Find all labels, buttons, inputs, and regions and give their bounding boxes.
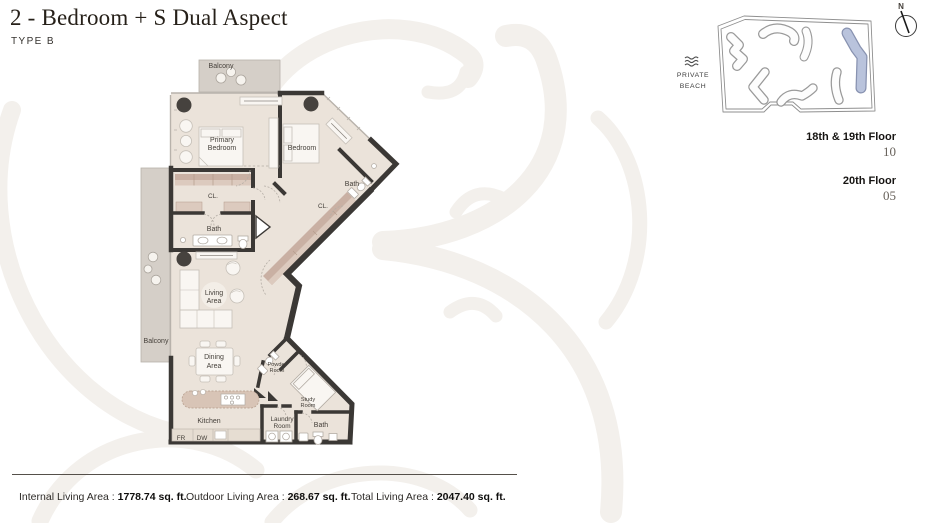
primary-bedroom-label-2: Bedroom — [208, 145, 237, 152]
bedroom-label: Bedroom — [288, 145, 317, 152]
floor-plan: Balcony Primary Bedroom Bedroom CL. Bath… — [141, 60, 396, 444]
stat-value: 2047.40 sq. ft. — [437, 491, 506, 503]
compass: N — [896, 2, 917, 37]
floorplan-page: Balcony Primary Bedroom Bedroom CL. Bath… — [0, 0, 926, 523]
balcony-top-label: Balcony — [209, 63, 234, 70]
laundry-label-1: Laundry — [270, 416, 294, 423]
kitchen-label: Kitchen — [197, 418, 220, 425]
private-beach-label: PRIVATE BEACH — [667, 71, 719, 92]
living-label-1: Living — [205, 290, 223, 297]
site-plan: N — [685, 2, 917, 112]
floor-label: 20th Floor — [806, 175, 896, 187]
compass-n-label: N — [898, 2, 904, 11]
floor-availability: 18th & 19th Floor 10 20th Floor 05 — [806, 131, 896, 219]
waves-icon — [685, 57, 698, 66]
primary-bedroom-label-1: Primary — [210, 137, 235, 144]
page-title: 2 - Bedroom + S Dual Aspect — [10, 5, 288, 31]
stat-label: Total Living Area : — [351, 491, 437, 503]
stat-label: Outdoor Living Area : — [186, 491, 288, 503]
bath-ensuite-label: Bath — [345, 181, 360, 188]
floor-unit-count: 10 — [806, 144, 896, 160]
floor-label: 18th & 19th Floor — [806, 131, 896, 143]
page-subtitle: TYPE B — [11, 36, 55, 47]
artwork-canvas: Balcony Primary Bedroom Bedroom CL. Bath… — [0, 0, 926, 523]
site-buildings — [731, 28, 862, 102]
floor-group: 20th Floor 05 — [806, 175, 896, 204]
dining-label-2: Area — [207, 363, 222, 370]
laundry-label-2: Room — [273, 423, 290, 430]
closet-left-label: CL. — [208, 193, 218, 200]
private-beach-line2: BEACH — [667, 82, 719, 93]
stats-divider — [12, 474, 517, 475]
stat-value: 268.67 sq. ft. — [288, 491, 351, 503]
bath-wing-label: Bath — [314, 422, 329, 429]
stat-value: 1778.74 sq. ft. — [118, 491, 187, 503]
balcony-left-label: Balcony — [144, 338, 169, 345]
living-label-2: Area — [207, 298, 222, 305]
floor-group: 18th & 19th Floor 10 — [806, 131, 896, 160]
internal-living-area-stat: Internal Living Area : 1778.74 sq. ft. — [19, 491, 187, 503]
bath-closet-label: Bath — [207, 226, 222, 233]
private-beach-line1: PRIVATE — [667, 71, 719, 82]
outdoor-living-area-stat: Outdoor Living Area : 268.67 sq. ft. — [186, 491, 351, 503]
highlighted-building — [847, 33, 862, 88]
closet-hall-label: CL. — [318, 203, 328, 210]
powder-label-2: Room — [270, 368, 285, 374]
fridge-label: FR — [177, 435, 186, 442]
total-living-area-stat: Total Living Area : 2047.40 sq. ft. — [351, 491, 506, 503]
balcony-left — [141, 168, 170, 362]
dining-label-1: Dining — [204, 354, 224, 361]
dishwasher-label: DW — [197, 435, 209, 442]
floor-unit-count: 05 — [806, 188, 896, 204]
study-label-2: Room — [301, 403, 316, 409]
stat-label: Internal Living Area : — [19, 491, 118, 503]
